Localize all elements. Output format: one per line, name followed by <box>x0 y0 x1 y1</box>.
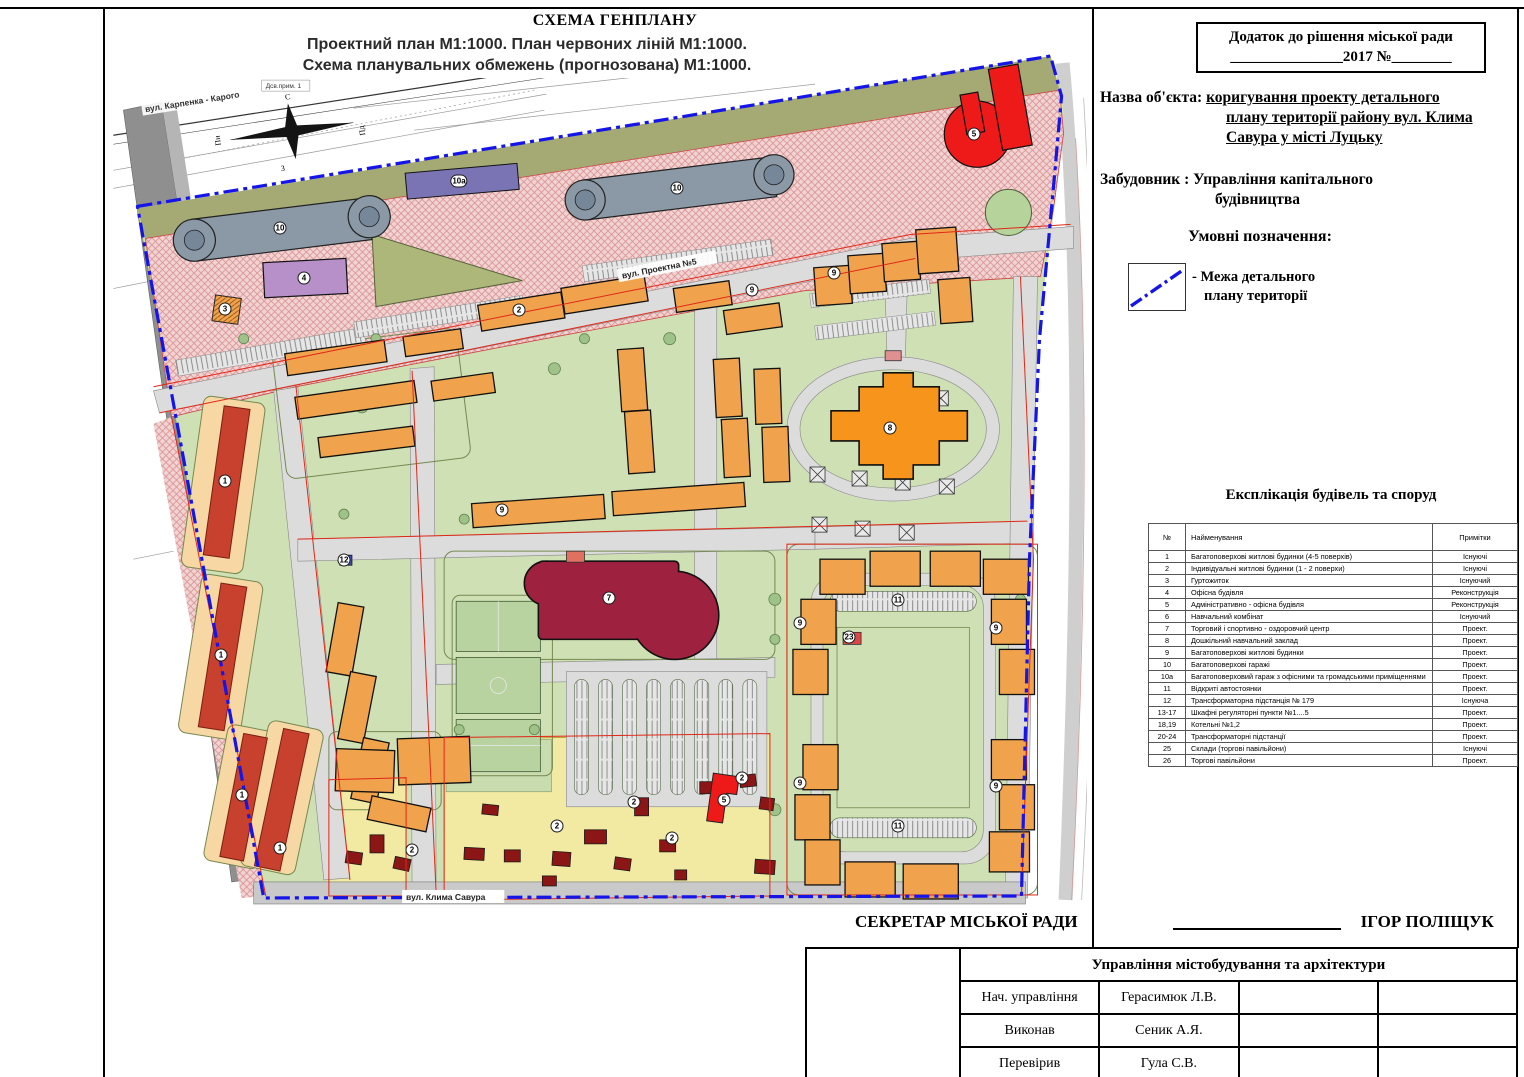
building-number-marker: 10 <box>671 182 684 195</box>
approval-name-cell: Герасимюк Л.В. <box>1099 981 1238 1014</box>
frame-top-line <box>0 7 1524 9</box>
expl-table-cell: Котельні №1,2 <box>1186 719 1433 731</box>
building-number-marker: 10 <box>274 222 287 235</box>
object-value-line1: коригування проекту детального <box>1206 89 1440 106</box>
expl-col-name: Найменування <box>1186 524 1433 551</box>
expl-table-cell: Шкафні регуляторні пункти №1....5 <box>1186 707 1433 719</box>
scheme-subtitle-line2: Схема планувальних обмежень (прогнозован… <box>292 55 762 76</box>
expl-table-row: 20-24Трансформаторні підстанціїПроект. <box>1149 731 1518 743</box>
expl-table-cell: Проект. <box>1433 647 1518 659</box>
expl-table-row: 8Дошкільний навчальний закладПроект. <box>1149 635 1518 647</box>
approval-blank-cell <box>1378 1047 1517 1077</box>
expl-table-cell: 4 <box>1149 587 1186 599</box>
expl-table-cell: Проект. <box>1433 623 1518 635</box>
secretary-name: ІГОР ПОЛІЩУК <box>1361 912 1494 932</box>
approval-blank-cell <box>1239 1014 1378 1047</box>
building-number-marker: 11 <box>892 594 905 607</box>
expl-table-cell: 3 <box>1149 575 1186 587</box>
expl-table-cell: 18,19 <box>1149 719 1186 731</box>
building-number-marker: 2 <box>736 772 749 785</box>
building-number-marker: 5 <box>718 794 731 807</box>
building-number-marker: 9 <box>794 777 807 790</box>
expl-table-cell: 25 <box>1149 743 1186 755</box>
expl-table-cell: 5 <box>1149 599 1186 611</box>
site-plan-map: Пн Пд С З Дсв.прим. 1 вул. Карпенка - Ка… <box>112 38 1087 910</box>
expl-table-cell: 10 <box>1149 659 1186 671</box>
genplan-sheet: Пн Пд С З Дсв.прим. 1 вул. Карпенка - Ка… <box>0 0 1524 1077</box>
expl-table-cell: 20-24 <box>1149 731 1186 743</box>
expl-table-row: 3ГуртожитокІснуючий <box>1149 575 1518 587</box>
expl-table-cell: Трансформаторна підстанція № 179 <box>1186 695 1433 707</box>
expl-table-row: 4Офісна будівляРеконструкція <box>1149 587 1518 599</box>
building-number-marker: 1 <box>215 649 228 662</box>
building-number-marker: 2 <box>551 820 564 833</box>
expl-table-cell: Відкриті автостоянки <box>1186 683 1433 695</box>
expl-table-cell: Проект. <box>1433 635 1518 647</box>
expl-table-cell: 9 <box>1149 647 1186 659</box>
explication-title: Експлікація будівель та споруд <box>1150 487 1512 504</box>
secretary-label: СЕКРЕТАР МІСЬКОЇ РАДИ <box>855 912 1078 932</box>
scheme-title: СХЕМА ГЕНПЛАНУ <box>430 12 800 30</box>
scheme-subtitle-line1: Проектний план М1:1000. План червоних лі… <box>292 34 762 55</box>
expl-table-cell: Існуючі <box>1433 551 1518 563</box>
building-number-marker: 1 <box>274 842 287 855</box>
building-number-marker: 23 <box>843 631 856 644</box>
expl-table-cell: Багатоповерхові гаражі <box>1186 659 1433 671</box>
expl-table-cell: Існуюча <box>1433 695 1518 707</box>
approval-blank-cell <box>1239 981 1378 1014</box>
building-number-marker: 12 <box>338 554 351 567</box>
building-number-marker: 5 <box>968 128 981 141</box>
expl-table-row: 10аБагатоповерховий гараж з офісними та … <box>1149 671 1518 683</box>
approval-name-cell: Сеник А.Я. <box>1099 1014 1238 1047</box>
expl-table-cell: Багатоповерхові житлові будинки (4-5 пов… <box>1186 551 1433 563</box>
expl-table-cell: Офісна будівля <box>1186 587 1433 599</box>
object-value-line2: плану території району вул. Клима <box>1100 108 1505 128</box>
expl-table-row: 18,19Котельні №1,2Проект. <box>1149 719 1518 731</box>
developer-value-line2: будівництва <box>1100 190 1505 210</box>
approval-role-cell: Нач. управління <box>960 981 1099 1014</box>
expl-table-cell: Проект. <box>1433 719 1518 731</box>
expl-table-row: 9Багатоповерхові житлові будинкиПроект. <box>1149 647 1518 659</box>
building-number-marker: 3 <box>219 303 232 316</box>
expl-table-cell: 13-17 <box>1149 707 1186 719</box>
expl-table-cell: Проект. <box>1433 755 1518 767</box>
building-number-marker: 1 <box>219 475 232 488</box>
approval-blank-cell <box>1378 1014 1517 1047</box>
developer-label: Забудовник : <box>1100 171 1189 188</box>
expl-table-cell: Гуртожиток <box>1186 575 1433 587</box>
expl-table-row: 7Торговий і спортивно - оздоровчий центр… <box>1149 623 1518 635</box>
expl-table-row: 2Індивідуальні житлові будинки (1 - 2 по… <box>1149 563 1518 575</box>
scheme-subtitle: Проектний план М1:1000. План червоних лі… <box>292 33 762 78</box>
expl-table-cell: Трансформаторні підстанції <box>1186 731 1433 743</box>
object-label: Назва об'єкта: <box>1100 89 1202 106</box>
expl-table-cell: Склади (торгові павільйони) <box>1186 743 1433 755</box>
expl-table-cell: Багатоповерхові житлові будинки <box>1186 647 1433 659</box>
map-note: Дсв.прим. 1 <box>262 80 310 91</box>
expl-table-cell: Адміністративно - офісна будівля <box>1186 599 1433 611</box>
expl-table-row: 6Навчальний комбінатІснуючий <box>1149 611 1518 623</box>
building-number-marker: 2 <box>666 832 679 845</box>
approval-empty-cell <box>806 948 960 1077</box>
object-name-block: Назва об'єкта: коригування проекту детал… <box>1100 88 1505 148</box>
approval-name-cell: Гула С.В. <box>1099 1047 1238 1077</box>
expl-table-row: 5Адміністративно - офісна будівляРеконст… <box>1149 599 1518 611</box>
expl-table-cell: Проект. <box>1433 659 1518 671</box>
building-number-marker: 9 <box>794 617 807 630</box>
expl-table-cell: 1 <box>1149 551 1186 563</box>
signature-line <box>1173 912 1341 930</box>
expl-table-row: 12Трансформаторна підстанція № 179Існуюч… <box>1149 695 1518 707</box>
expl-table-cell: Індивідуальні житлові будинки (1 - 2 пов… <box>1186 563 1433 575</box>
expl-table-cell: 2 <box>1149 563 1186 575</box>
street-label-savura: вул. Клима Савура <box>402 890 504 903</box>
building-number-marker: 10а <box>450 175 467 188</box>
expl-table-cell: 6 <box>1149 611 1186 623</box>
expl-table-row: 26Торгові павільйониПроект. <box>1149 755 1518 767</box>
decision-line1: Додаток до рішення міської ради <box>1198 27 1484 47</box>
approval-table: Управління містобудування та архітектури… <box>805 947 1518 1077</box>
frame-right-line <box>1517 7 1519 948</box>
expl-table-cell: 8 <box>1149 635 1186 647</box>
legend-item-boundary: - Межа детального плану території <box>1192 268 1432 306</box>
expl-table-cell: 12 <box>1149 695 1186 707</box>
expl-table-cell: Існуючі <box>1433 743 1518 755</box>
expl-table-row: 1Багатоповерхові житлові будинки (4-5 по… <box>1149 551 1518 563</box>
building-number-marker: 7 <box>603 592 616 605</box>
expl-col-no: № <box>1149 524 1186 551</box>
site-plan-drawing: Пн Пд С З Дсв.прим. 1 вул. Карпенка - Ка… <box>112 38 1087 910</box>
expl-table-cell: Реконструкція <box>1433 587 1518 599</box>
legend-item-line1: - Межа детального <box>1192 268 1432 287</box>
building-number-marker: 2 <box>628 796 641 809</box>
frame-mid-line <box>1092 7 1094 948</box>
expl-table-row: 25Склади (торгові павільйони)Існуючі <box>1149 743 1518 755</box>
expl-table-row: 11Відкриті автостоянкиПроект. <box>1149 683 1518 695</box>
compass-north-label: Пн <box>212 134 222 146</box>
legend-title: Умовні позначення: <box>1150 228 1370 246</box>
expl-table-cell: 26 <box>1149 755 1186 767</box>
expl-table-cell: Проект. <box>1433 731 1518 743</box>
explication-table: № Найменування Примітки 1Багатоповерхові… <box>1148 523 1518 767</box>
building-number-marker: 2 <box>406 844 419 857</box>
approval-blank-cell <box>1378 981 1517 1014</box>
expl-table-cell: 10а <box>1149 671 1186 683</box>
expl-table-cell: 11 <box>1149 683 1186 695</box>
building-number-marker: 8 <box>884 422 897 435</box>
expl-table-cell: Проект. <box>1433 683 1518 695</box>
secretary-signature-row: СЕКРЕТАР МІСЬКОЇ РАДИ ІГОР ПОЛІЩУК <box>855 912 1495 932</box>
frame-left-line <box>103 7 105 1077</box>
approval-role-cell: Перевірив <box>960 1047 1099 1077</box>
building-number-marker: 9 <box>990 780 1003 793</box>
building-number-marker: 1 <box>236 789 249 802</box>
developer-value-line1: Управління капітального <box>1193 171 1373 188</box>
expl-table-cell: Існуючий <box>1433 611 1518 623</box>
expl-table-row: 13-17Шкафні регуляторні пункти №1....5Пр… <box>1149 707 1518 719</box>
building-number-marker: 9 <box>496 504 509 517</box>
expl-table-cell: Торговий і спортивно - оздоровчий центр <box>1186 623 1433 635</box>
boundary-legend-symbol <box>1128 263 1186 311</box>
approval-department: Управління містобудування та архітектури <box>960 948 1517 981</box>
building-number-marker: 9 <box>828 267 841 280</box>
expl-table-cell: Навчальний комбінат <box>1186 611 1433 623</box>
expl-table-cell: Існуючий <box>1433 575 1518 587</box>
compass-south-label: Пд <box>357 125 367 136</box>
approval-blank-cell <box>1239 1047 1378 1077</box>
expl-table-cell: Реконструкція <box>1433 599 1518 611</box>
decision-box: Додаток до рішення міської ради ________… <box>1196 22 1486 73</box>
map-note-label: Дсв.прим. 1 <box>266 83 302 90</box>
decision-line2: _______________2017 №________ <box>1198 47 1484 67</box>
expl-table-cell: Дошкільний навчальний заклад <box>1186 635 1433 647</box>
expl-table-cell: 7 <box>1149 623 1186 635</box>
building-number-marker: 2 <box>513 304 526 317</box>
expl-col-note: Примітки <box>1433 524 1518 551</box>
expl-table-cell: Проект. <box>1433 707 1518 719</box>
approval-role-cell: Виконав <box>960 1014 1099 1047</box>
building-number-marker: 9 <box>746 284 759 297</box>
developer-block: Забудовник : Управління капітального буд… <box>1100 170 1505 210</box>
expl-table-cell: Торгові павільйони <box>1186 755 1433 767</box>
building-number-marker: 11 <box>892 820 905 833</box>
expl-table-cell: Багатоповерховий гараж з офісними та гро… <box>1186 671 1433 683</box>
expl-table-cell: Проект. <box>1433 671 1518 683</box>
object-value-line3: Савура у місті Луцьку <box>1100 128 1505 148</box>
svg-text:вул. Клима Савура: вул. Клима Савура <box>406 892 486 902</box>
expl-table-cell: Існуючі <box>1433 563 1518 575</box>
expl-table-row: 10Багатоповерхові гаражіПроект. <box>1149 659 1518 671</box>
building-number-marker: 9 <box>990 622 1003 635</box>
building-number-marker: 4 <box>298 272 311 285</box>
legend-item-line2: плану території <box>1192 287 1432 306</box>
